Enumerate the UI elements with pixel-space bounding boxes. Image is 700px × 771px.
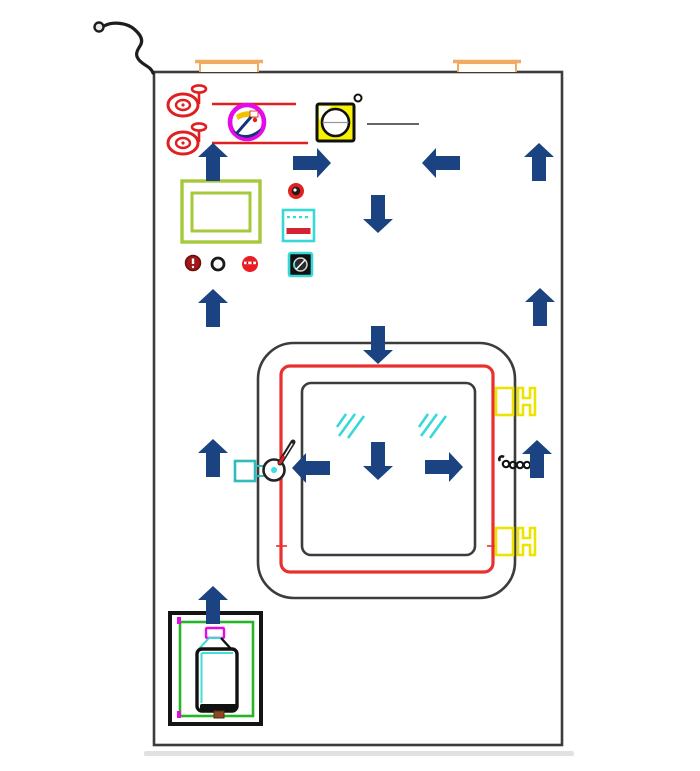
- viewing-window-glass: [302, 383, 475, 555]
- lifting-bracket-left: [195, 62, 263, 73]
- control-display: [283, 210, 314, 241]
- diagram-canvas: [0, 0, 700, 771]
- yellow-gauge: [317, 104, 354, 141]
- cabinet-diagram-art: [0, 0, 700, 771]
- lifting-bracket-right: [453, 62, 521, 73]
- floor-shadow: [144, 751, 574, 756]
- cylinder-compartment: [170, 613, 261, 724]
- hook-ring-icon: [95, 23, 104, 32]
- gauge-degree-mark: [355, 95, 362, 102]
- indicator-dark-red: [186, 256, 201, 271]
- cylinder-cap: [206, 628, 224, 638]
- cylinder-foot: [214, 711, 224, 718]
- display-red-bar: [287, 228, 311, 234]
- magenta-badge: [230, 105, 264, 139]
- handle-keeper: [235, 461, 255, 481]
- green-vent-frame: [182, 181, 260, 242]
- red-knob: [288, 183, 304, 199]
- power-socket: [289, 253, 312, 276]
- indicator-white: [212, 258, 224, 270]
- viewing-window: [258, 343, 515, 598]
- indicator-red: [242, 256, 258, 272]
- hose-hook: [95, 23, 154, 74]
